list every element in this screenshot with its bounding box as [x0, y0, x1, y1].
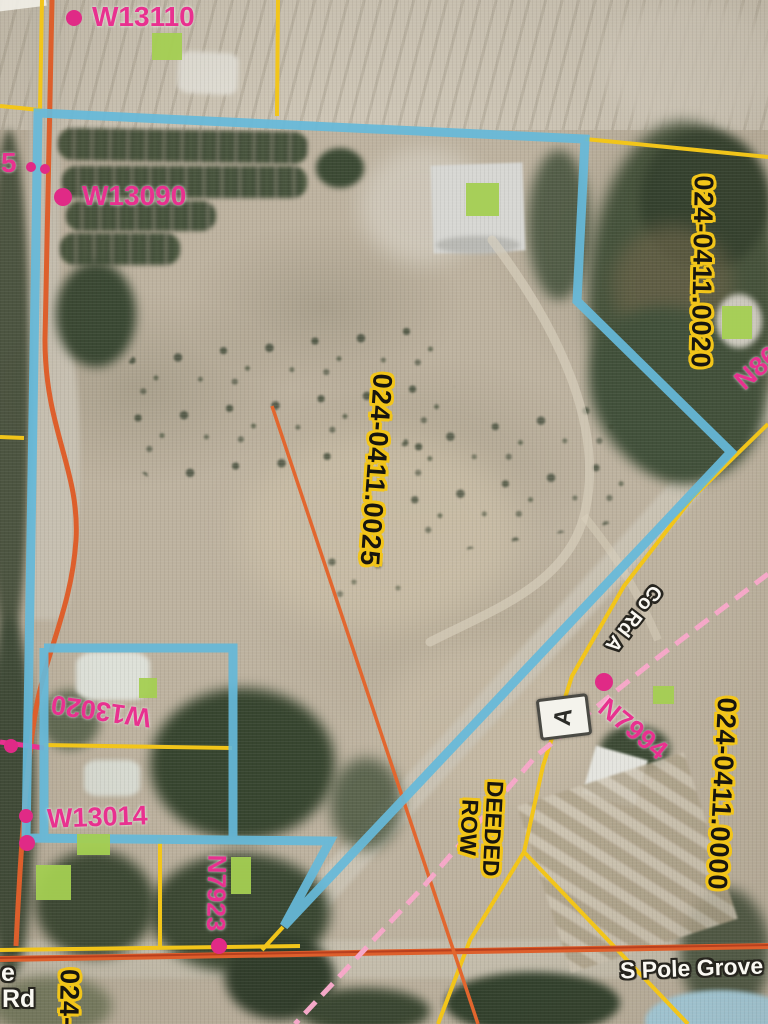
building-marker: [77, 834, 110, 855]
building-marker: [722, 306, 752, 339]
farm-trail: [430, 240, 590, 642]
deeded-row-line1: DEEDED: [478, 780, 507, 877]
building-marker: [653, 686, 674, 704]
point-marker: [19, 809, 33, 823]
parcel-id-0020: 024-0411.0020: [686, 175, 718, 369]
building-marker: [36, 865, 71, 900]
road-label-fragment-top: e: [1, 960, 15, 986]
point-marker: [595, 673, 613, 691]
parcel-id-partial: 024-0: [54, 969, 84, 1024]
county-highway-letter: A: [549, 707, 579, 728]
point-marker: [26, 162, 36, 172]
address-label-partial-5: 5: [1, 148, 17, 177]
building-marker: [152, 33, 182, 60]
building-marker: [466, 183, 499, 216]
building-marker: [139, 678, 157, 698]
point-marker: [4, 739, 18, 753]
road-label-s-pole-grove: S Pole Grove: [620, 954, 764, 983]
point-marker: [54, 188, 72, 206]
point-marker: [40, 164, 50, 174]
address-label-w13014: W13014: [47, 801, 149, 833]
building-marker: [231, 857, 251, 894]
point-marker: [66, 10, 82, 26]
deeded-row-note: DEEDED ROW: [454, 779, 507, 877]
point-marker: [211, 938, 227, 954]
point-marker: [19, 835, 35, 851]
county-highway-marker: A: [536, 693, 593, 741]
address-label-w13090: W13090: [82, 181, 186, 210]
aerial-parcel-map: A W13110 5 W13090 024-0411.0025 024-0411…: [0, 0, 768, 1024]
address-label-w13110: W13110: [92, 2, 195, 31]
road-label-fragment-bottom: Rd: [2, 986, 35, 1012]
address-label-n7923: N7923: [202, 854, 231, 931]
